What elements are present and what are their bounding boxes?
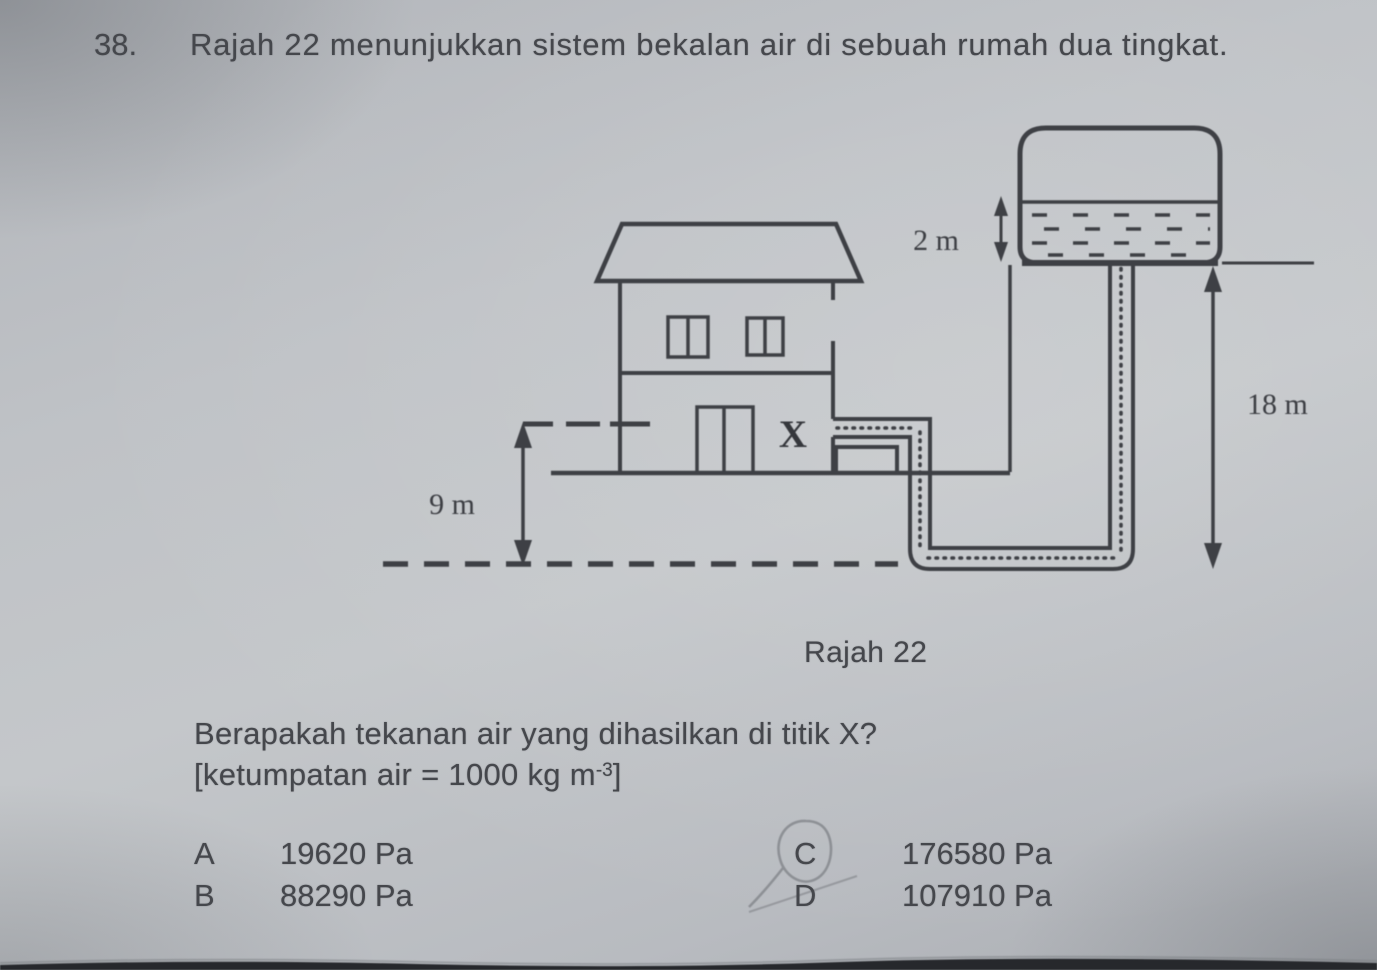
option-d-letter: D bbox=[794, 878, 816, 914]
pipe-water-texture bbox=[837, 268, 1121, 558]
dimension-2m-arrow bbox=[994, 196, 1008, 262]
water-pipes bbox=[833, 266, 1133, 569]
option-b-letter: B bbox=[194, 878, 215, 914]
question-number: 38. bbox=[94, 27, 137, 63]
figure-rajah-22: 2 m 18 m 9 m X bbox=[0, 0, 1377, 970]
arrowhead-down bbox=[1204, 543, 1222, 569]
label-2m: 2 m bbox=[913, 224, 959, 257]
scanned-exam-page: 2 m 18 m 9 m X 38. Rajah 22 menunjukkan … bbox=[0, 0, 1377, 970]
tank-water-texture bbox=[1032, 215, 1210, 255]
label-18m: 18 m bbox=[1247, 388, 1308, 421]
option-c-letter: C bbox=[794, 836, 816, 872]
question-text: Rajah 22 menunjukkan sistem bekalan air … bbox=[190, 27, 1228, 63]
house-window-right bbox=[747, 318, 783, 355]
question-prompt: Berapakah tekanan air yang dihasilkan di… bbox=[194, 716, 877, 752]
option-c-value: 176580 Pa bbox=[902, 836, 1052, 872]
arrowhead-down bbox=[994, 242, 1008, 262]
option-d-value: 107910 Pa bbox=[902, 878, 1052, 914]
dimension-18m-arrow bbox=[1204, 266, 1222, 569]
label-point-x: X bbox=[779, 413, 807, 456]
pencil-circle-answer-c bbox=[749, 821, 831, 907]
given-suffix: ] bbox=[613, 757, 622, 792]
label-9m: 9 m bbox=[429, 488, 475, 521]
arrowhead-up bbox=[1204, 266, 1222, 292]
option-b-value: 88290 Pa bbox=[280, 878, 413, 914]
house bbox=[597, 224, 861, 473]
given-superscript: -3 bbox=[596, 760, 613, 781]
house-roof bbox=[597, 224, 861, 281]
given-data: [ketumpatan air = 1000 kg m-3] bbox=[194, 757, 622, 793]
house-window-left bbox=[668, 317, 708, 357]
basin-under-tap bbox=[836, 447, 897, 472]
house-door bbox=[697, 407, 753, 472]
given-prefix: [ketumpatan air = 1000 kg m bbox=[194, 757, 596, 792]
pipe-inner-wall bbox=[833, 266, 1110, 548]
arrowhead-up bbox=[994, 196, 1008, 216]
option-a-letter: A bbox=[194, 836, 215, 872]
dimension-9m-arrow bbox=[514, 422, 532, 566]
figure-caption: Rajah 22 bbox=[804, 636, 927, 671]
option-a-value: 19620 Pa bbox=[280, 836, 413, 872]
